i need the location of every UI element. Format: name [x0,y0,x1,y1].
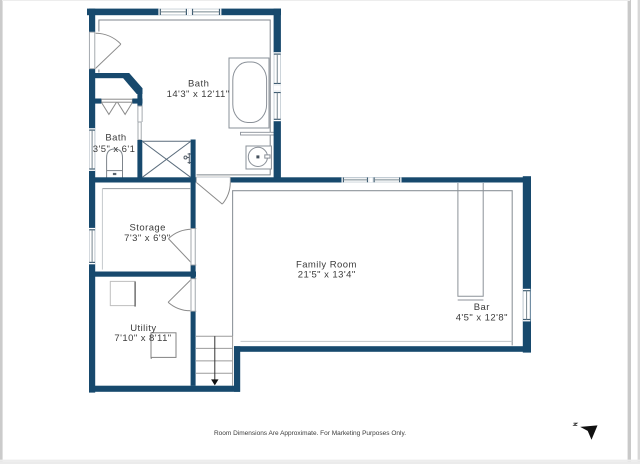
svg-text:Bath: Bath [105,132,126,143]
svg-text:Bath: Bath [188,79,209,90]
svg-text:3'5" x 6'1: 3'5" x 6'1 [93,144,136,155]
svg-text:4'5" x 12'8": 4'5" x 12'8" [456,312,508,323]
svg-text:21'5" x 13'4": 21'5" x 13'4" [298,270,356,281]
svg-text:Room Dimensions Are Approximat: Room Dimensions Are Approximate. For Mar… [214,430,406,437]
svg-text:14'3" x 12'11": 14'3" x 12'11" [167,89,230,100]
svg-text:7'3" x 6'9": 7'3" x 6'9" [124,233,171,244]
svg-text:7'10" x 8'11": 7'10" x 8'11" [114,333,171,344]
svg-text:Storage: Storage [129,223,165,234]
